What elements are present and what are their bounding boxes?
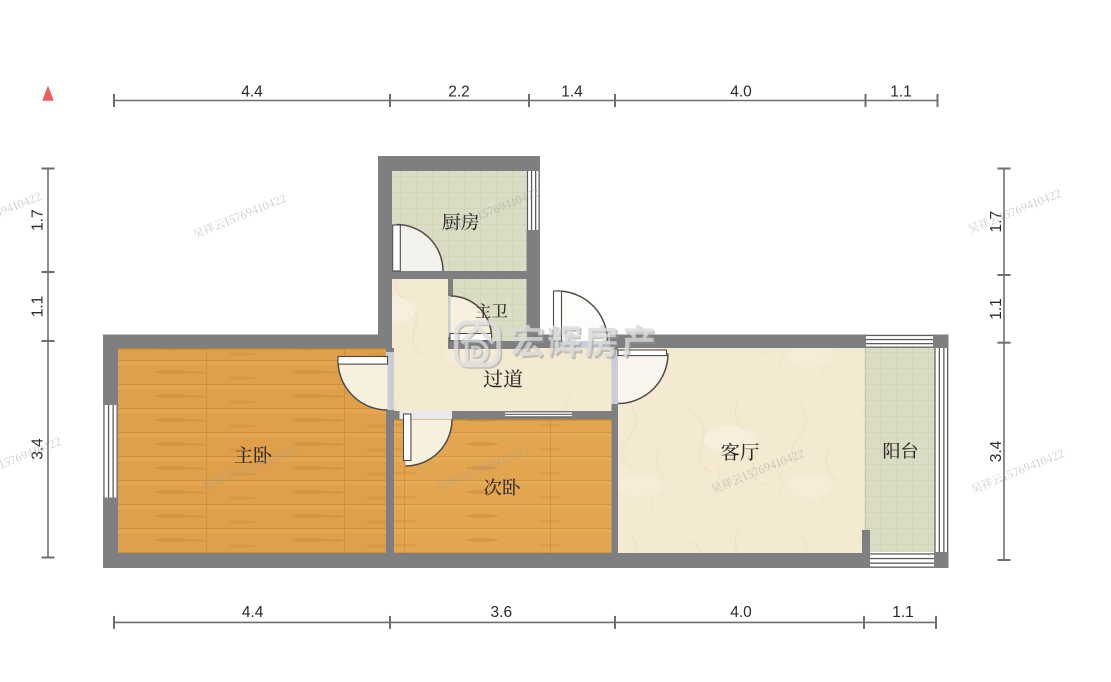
svg-text:1.4: 1.4 (561, 84, 583, 101)
svg-text:1.1: 1.1 (988, 298, 1005, 320)
svg-text:4.4: 4.4 (241, 84, 263, 101)
svg-text:3.4: 3.4 (988, 440, 1005, 462)
svg-text:1.7: 1.7 (30, 209, 47, 231)
svg-text:1.1: 1.1 (30, 296, 47, 318)
svg-text:4.0: 4.0 (730, 604, 752, 621)
svg-text:3.6: 3.6 (491, 604, 513, 621)
svg-text:2.2: 2.2 (448, 84, 470, 101)
svg-text:1.1: 1.1 (892, 604, 914, 621)
svg-text:4.0: 4.0 (730, 84, 752, 101)
svg-text:1.1: 1.1 (890, 84, 912, 101)
svg-text:4.4: 4.4 (242, 604, 264, 621)
svg-text:1.7: 1.7 (988, 211, 1005, 233)
